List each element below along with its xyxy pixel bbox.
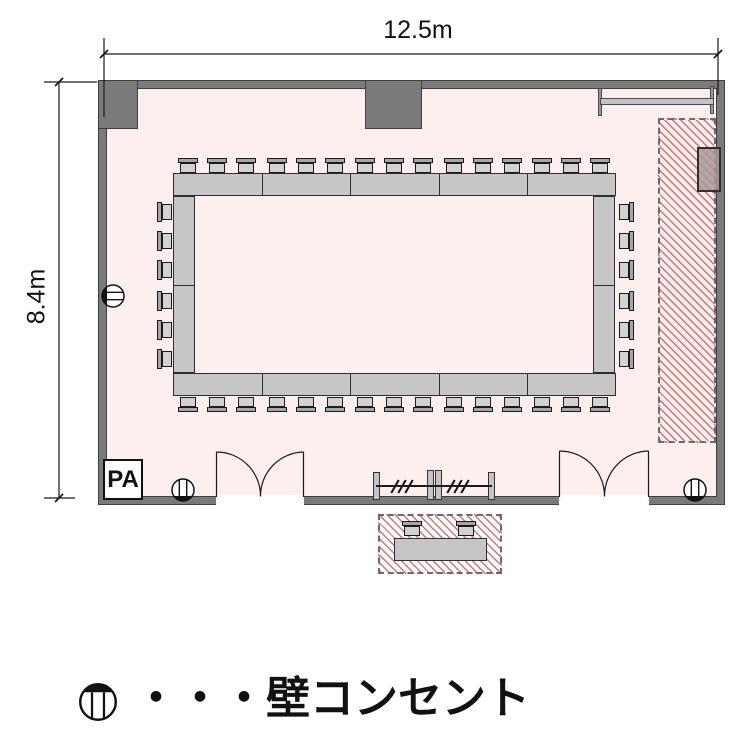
table-divider bbox=[439, 173, 440, 196]
chair-icon bbox=[384, 397, 404, 412]
chair-icon bbox=[178, 397, 198, 412]
chair-icon bbox=[502, 397, 522, 412]
chair-icon bbox=[561, 397, 581, 412]
chair-icon bbox=[413, 158, 433, 173]
table-divider bbox=[350, 173, 351, 196]
chair-icon bbox=[325, 158, 345, 173]
table-divider bbox=[262, 173, 263, 196]
partition-post bbox=[488, 472, 495, 500]
chair-icon bbox=[619, 291, 634, 311]
chair-icon bbox=[355, 158, 375, 173]
table-row-top bbox=[173, 173, 616, 196]
wall-outlet-icon bbox=[100, 283, 126, 309]
legend-label: ・・・壁コンセント bbox=[134, 677, 530, 721]
chair-icon bbox=[157, 291, 172, 311]
floor-plan-canvas: 12.5m 8.4m PA bbox=[0, 0, 750, 750]
chair-icon bbox=[296, 397, 316, 412]
table-divider bbox=[439, 373, 440, 396]
door-opening-right bbox=[559, 495, 649, 506]
chair-icon bbox=[157, 202, 172, 222]
chair-icon bbox=[619, 202, 634, 222]
reception-table bbox=[394, 538, 487, 561]
partition-post bbox=[373, 472, 380, 500]
chair-icon bbox=[561, 158, 581, 173]
width-dimension-label: 12.5m bbox=[358, 16, 478, 45]
partition-post bbox=[435, 470, 442, 500]
table-divider bbox=[527, 173, 528, 196]
chair-icon bbox=[157, 260, 172, 280]
chair-icon bbox=[444, 158, 464, 173]
table-divider bbox=[173, 285, 195, 286]
chair-icon bbox=[207, 397, 227, 412]
chair-icon bbox=[473, 397, 493, 412]
legend-wall-outlet-icon bbox=[74, 678, 122, 726]
chair-icon bbox=[590, 397, 610, 412]
pa-box: PA bbox=[103, 459, 143, 500]
chair-icon bbox=[619, 231, 634, 251]
chair-icon bbox=[532, 158, 552, 173]
wall-equipment-box bbox=[697, 147, 721, 192]
chair-icon bbox=[384, 158, 404, 173]
chair-icon bbox=[590, 158, 610, 173]
chair-icon bbox=[267, 397, 287, 412]
partition-post bbox=[427, 470, 434, 500]
pillar-top-left bbox=[98, 80, 138, 129]
chair-icon bbox=[236, 158, 256, 173]
chair-icon bbox=[402, 521, 422, 536]
chair-icon bbox=[178, 158, 198, 173]
chair-icon bbox=[355, 397, 375, 412]
table-divider bbox=[527, 373, 528, 396]
chair-icon bbox=[502, 158, 522, 173]
chair-icon bbox=[619, 349, 634, 369]
table-divider bbox=[262, 373, 263, 396]
pillar-top-center bbox=[365, 80, 422, 129]
chair-icon bbox=[157, 349, 172, 369]
chair-icon bbox=[444, 397, 464, 412]
chair-icon bbox=[157, 231, 172, 251]
chair-icon bbox=[532, 397, 552, 412]
chair-icon bbox=[413, 397, 433, 412]
wall-outlet-icon bbox=[682, 477, 708, 503]
chair-icon bbox=[325, 397, 345, 412]
table-divider bbox=[593, 285, 615, 286]
wall-outlet-icon bbox=[170, 477, 196, 503]
chair-icon bbox=[267, 158, 287, 173]
wall-mounted-screen bbox=[600, 98, 714, 105]
table-row-bottom bbox=[173, 373, 616, 396]
chair-icon bbox=[456, 521, 476, 536]
table-divider bbox=[350, 373, 351, 396]
chair-icon bbox=[473, 158, 493, 173]
chair-icon bbox=[619, 260, 634, 280]
chair-icon bbox=[296, 158, 316, 173]
chair-icon bbox=[157, 320, 172, 340]
chair-icon bbox=[207, 158, 227, 173]
chair-icon bbox=[619, 320, 634, 340]
wall-outlet-icon bbox=[77, 681, 119, 723]
chair-icon bbox=[236, 397, 256, 412]
door-opening-left bbox=[216, 495, 304, 506]
height-dimension-label: 8.4m bbox=[23, 257, 52, 337]
